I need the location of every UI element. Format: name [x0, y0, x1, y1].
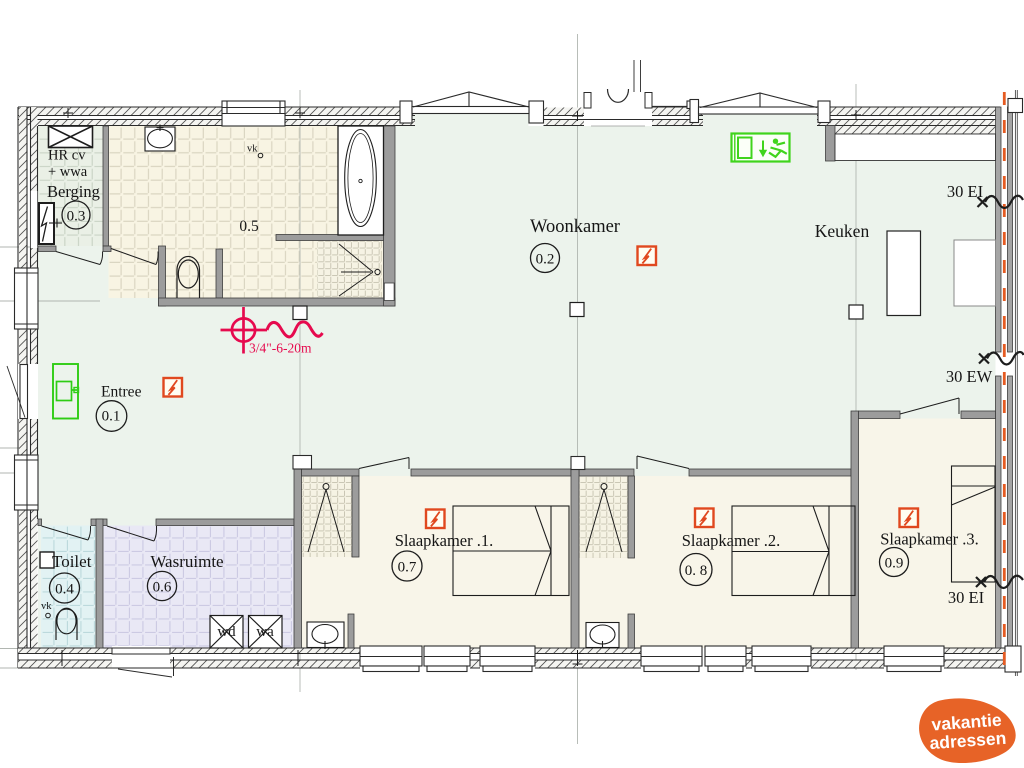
svg-text:Berging: Berging [47, 182, 100, 201]
svg-text:Wasruimte: Wasruimte [150, 552, 223, 571]
svg-text:0. 8: 0. 8 [685, 563, 708, 579]
svg-text:vk: vk [247, 144, 258, 155]
svg-text:30 EW: 30 EW [946, 367, 993, 386]
svg-text:0.9: 0.9 [885, 556, 904, 572]
svg-text:0.6: 0.6 [153, 580, 172, 596]
svg-text:0.7: 0.7 [398, 560, 417, 576]
svg-text:Keuken: Keuken [815, 221, 870, 241]
svg-text:0.2: 0.2 [536, 252, 555, 268]
svg-text:0.4: 0.4 [55, 582, 74, 598]
svg-text:Slaapkamer .1.: Slaapkamer .1. [395, 531, 494, 550]
svg-text:Entree: Entree [101, 384, 142, 401]
svg-text:0.1: 0.1 [102, 409, 121, 425]
svg-text:wd: wd [217, 624, 236, 640]
svg-text:+ wwa: + wwa [48, 164, 88, 180]
svg-text:30 EI: 30 EI [948, 588, 984, 607]
svg-text:3/4"-6-20m: 3/4"-6-20m [249, 341, 312, 356]
svg-text:Slaapkamer .3.: Slaapkamer .3. [880, 530, 979, 549]
svg-text:Slaapkamer .2.: Slaapkamer .2. [682, 531, 781, 550]
svg-text:Woonkamer: Woonkamer [530, 217, 620, 237]
svg-text:HR cv: HR cv [48, 148, 86, 164]
svg-text:wa: wa [256, 624, 274, 640]
svg-text:0.3: 0.3 [67, 209, 86, 225]
svg-text:0.5: 0.5 [239, 218, 259, 235]
svg-text:Toilet: Toilet [52, 552, 92, 571]
svg-text:vk: vk [41, 601, 52, 612]
